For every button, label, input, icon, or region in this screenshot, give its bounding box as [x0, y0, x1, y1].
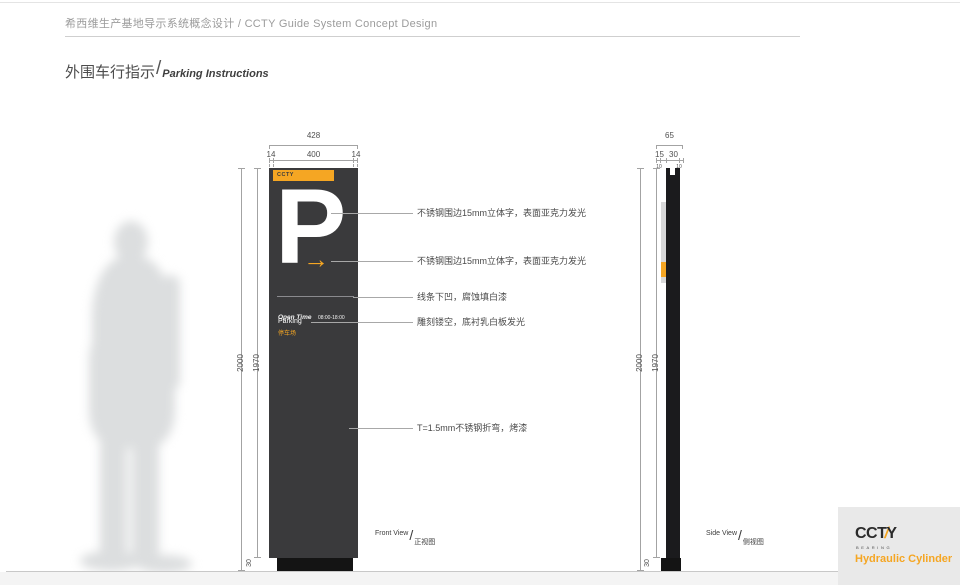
document-header: 希西维生产基地导示系统概念设计 / CCTY Guide System Conc…	[65, 15, 437, 31]
dim-front-margin-right: 14	[347, 150, 365, 160]
dim-front-inner-width: 400	[269, 150, 358, 160]
design-sheet: 希西维生产基地导示系统概念设计 / CCTY Guide System Conc…	[0, 0, 960, 585]
dim-front-panel-height: 1970	[252, 343, 262, 383]
dim-line-428	[269, 145, 358, 146]
dim-side-base-height: 30	[643, 553, 653, 573]
dim-tick	[273, 164, 274, 167]
page-title-slash: /	[156, 58, 161, 80]
dim-front-total-width: 428	[269, 131, 358, 141]
dim-tick	[357, 164, 358, 167]
sign-base-side	[661, 558, 681, 571]
annotation-5: T=1.5mm不锈钢折弯，烤漆	[417, 422, 527, 434]
logo-cct: CCT	[855, 525, 886, 542]
sign-front-view: CCTY P → Open Time 08:00-18:00 Parking 停…	[269, 168, 358, 558]
direction-arrow-icon: →	[303, 246, 329, 272]
dim-side-panel-height: 1970	[651, 343, 661, 383]
leader-line-3	[353, 297, 413, 298]
dim-tick	[254, 168, 261, 169]
dim-line-400	[269, 160, 358, 161]
ccty-logo: CCT/Y	[855, 525, 897, 543]
human-silhouette	[62, 205, 212, 577]
annotation-1: 不锈钢围边15mm立体字，表面亚克力发光	[417, 207, 586, 219]
leader-line-1	[331, 213, 413, 214]
dim-tick	[238, 168, 245, 169]
dim-tick	[666, 158, 667, 163]
dim-line-65	[656, 145, 683, 146]
leader-line-5	[349, 428, 413, 429]
open-time-value: 08:00-18:00	[318, 315, 345, 321]
sign-base-front	[277, 558, 353, 571]
dim-tick	[656, 145, 657, 149]
front-view-label-slash: /	[409, 528, 413, 542]
recessed-line	[277, 296, 354, 297]
annotation-4: 雕刻镂空，底衬乳白板发光	[417, 316, 525, 328]
dim-front-base-height: 30	[245, 553, 255, 573]
leader-line-2	[331, 261, 413, 262]
dim-tick	[269, 164, 270, 167]
logo-y: Y	[886, 525, 896, 542]
page-title: 外围车行指示 / Parking Instructions	[65, 58, 269, 82]
logo-tagline: Hydraulic Cylinder	[855, 553, 952, 565]
dim-front-total-height: 2000	[236, 343, 246, 383]
dim-tick	[682, 145, 683, 149]
dim-tick	[273, 158, 274, 163]
side-view-label-en: Side View	[706, 530, 737, 537]
top-divider	[0, 2, 960, 3]
sign-side-view	[666, 168, 680, 558]
dim-tick	[637, 168, 644, 169]
dim-tick	[269, 145, 270, 149]
logo-subtitle: BEARING	[856, 545, 892, 550]
brand-footer-panel: CCT/Y BEARING Hydraulic Cylinder	[838, 507, 960, 585]
front-view-label-zh: 正视图	[414, 537, 435, 547]
dim-tick	[357, 158, 358, 163]
dim-tick	[353, 164, 354, 167]
sign-name-en: Parking	[278, 318, 302, 325]
page-title-en: Parking Instructions	[162, 68, 268, 80]
dim-tick	[269, 158, 270, 163]
side-view-label-slash: /	[738, 528, 742, 542]
annotation-2: 不锈钢围边15mm立体字，表面亚克力发光	[417, 255, 586, 267]
dim-tick	[353, 158, 354, 163]
dim-tick	[357, 145, 358, 149]
page-title-zh: 外围车行指示	[65, 61, 155, 82]
leader-line-4	[311, 322, 413, 323]
sign-name-zh: 停车场	[278, 328, 296, 337]
dim-side-total-height: 2000	[635, 343, 645, 383]
dim-side-total-depth: 65	[656, 131, 683, 141]
dim-tick	[653, 557, 660, 558]
side-top-notch	[670, 168, 675, 175]
front-view-label-en: Front View	[375, 530, 408, 537]
header-rule	[65, 36, 800, 37]
below-ground-strip	[0, 572, 838, 585]
side-view-label: Side View / 侧视图	[706, 528, 764, 547]
dim-tick	[254, 557, 261, 558]
side-view-label-zh: 侧视图	[743, 537, 764, 547]
annotation-3: 线条下凹，腐蚀填白漆	[417, 291, 507, 303]
front-view-label: Front View / 正视图	[375, 528, 435, 547]
dim-tick	[653, 168, 660, 169]
